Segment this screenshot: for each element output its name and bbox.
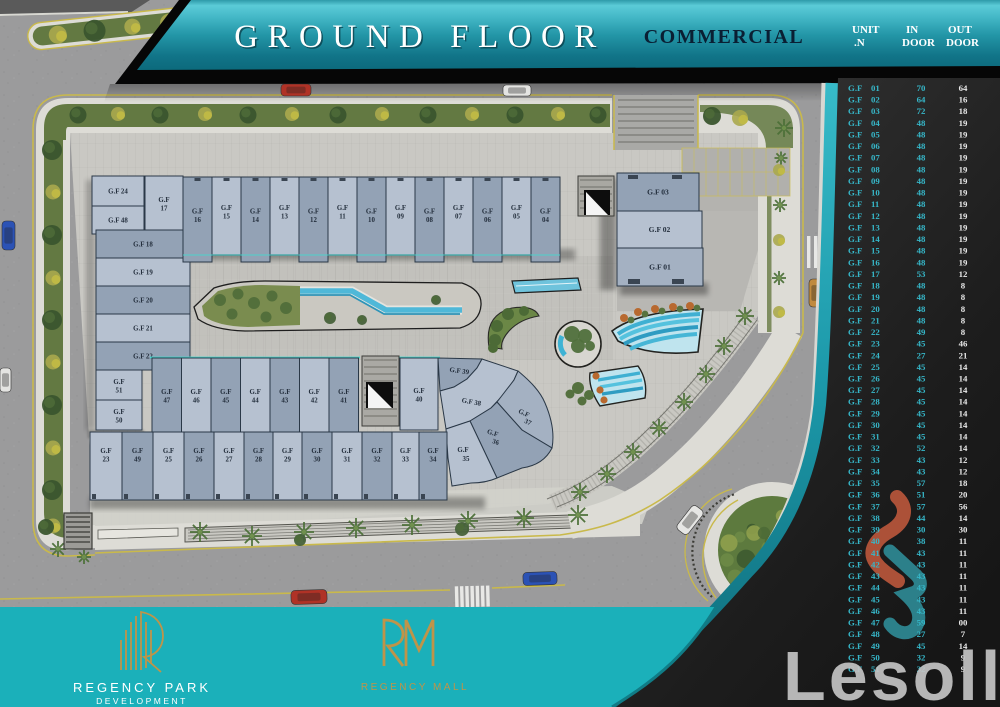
svg-text:24: 24 [871, 350, 880, 360]
svg-text:38: 38 [917, 536, 926, 546]
svg-text:41: 41 [871, 548, 880, 558]
svg-text:45: 45 [917, 339, 926, 349]
svg-text:29: 29 [284, 457, 291, 464]
svg-text:G.F: G.F [400, 448, 411, 455]
svg-text:11: 11 [871, 199, 879, 209]
svg-text:G.F: G.F [848, 339, 862, 349]
svg-text:08: 08 [871, 164, 880, 174]
svg-text:02: 02 [871, 95, 880, 105]
svg-text:G.F: G.F [848, 95, 862, 105]
svg-text:G.F: G.F [848, 222, 862, 232]
svg-text:G.F: G.F [371, 448, 382, 455]
svg-text:G.F 21: G.F 21 [133, 326, 153, 333]
svg-text:07: 07 [455, 214, 462, 221]
svg-text:G.F: G.F [848, 559, 862, 569]
svg-text:G.F: G.F [366, 209, 377, 216]
svg-text:48: 48 [917, 164, 926, 174]
svg-text:32: 32 [374, 457, 381, 464]
svg-text:G.F: G.F [113, 379, 124, 386]
svg-text:26: 26 [196, 457, 203, 464]
svg-text:G.F: G.F [848, 455, 862, 465]
svg-text:8: 8 [961, 327, 966, 337]
svg-text:06: 06 [871, 141, 880, 151]
svg-text:43: 43 [917, 571, 926, 581]
svg-text:48: 48 [917, 188, 926, 198]
svg-text:48: 48 [917, 199, 926, 209]
svg-text:12: 12 [959, 455, 968, 465]
svg-text:G.F: G.F [848, 443, 862, 453]
svg-text:37: 37 [871, 501, 880, 511]
svg-text:18: 18 [959, 106, 968, 116]
svg-text:G.F: G.F [337, 205, 348, 212]
svg-text:10: 10 [368, 217, 375, 224]
svg-text:G.F: G.F [848, 362, 862, 372]
svg-text:11: 11 [959, 548, 967, 558]
svg-text:G.F: G.F [848, 513, 862, 523]
svg-text:19: 19 [959, 211, 968, 221]
svg-text:.N: .N [854, 37, 865, 49]
svg-text:G.F: G.F [457, 447, 468, 454]
svg-text:39: 39 [871, 525, 880, 535]
svg-text:G.F: G.F [540, 209, 551, 216]
svg-text:06: 06 [484, 217, 491, 224]
svg-text:15: 15 [223, 214, 230, 221]
svg-text:70: 70 [917, 83, 926, 93]
svg-text:14: 14 [959, 432, 968, 442]
svg-text:G.F: G.F [848, 408, 862, 418]
svg-text:27: 27 [226, 457, 233, 464]
svg-text:33: 33 [871, 455, 880, 465]
svg-text:8: 8 [961, 292, 966, 302]
svg-text:53: 53 [917, 269, 926, 279]
svg-text:42: 42 [311, 398, 318, 405]
svg-text:G.F: G.F [848, 269, 862, 279]
svg-text:45: 45 [917, 397, 926, 407]
svg-text:G.F: G.F [424, 209, 435, 216]
svg-text:43: 43 [917, 548, 926, 558]
svg-text:45: 45 [222, 398, 229, 405]
svg-text:G.F: G.F [413, 388, 424, 395]
svg-text:G.F 48: G.F 48 [108, 218, 128, 225]
svg-text:12: 12 [310, 217, 317, 224]
svg-text:48: 48 [917, 222, 926, 232]
svg-text:19: 19 [959, 246, 968, 256]
svg-text:00: 00 [959, 618, 968, 628]
svg-text:11: 11 [959, 559, 967, 569]
svg-text:DEVELOPMENT: DEVELOPMENT [96, 696, 188, 706]
svg-text:19: 19 [959, 176, 968, 186]
svg-text:G.F: G.F [250, 209, 261, 216]
svg-text:19: 19 [959, 141, 968, 151]
svg-text:COMMERCIAL: COMMERCIAL [644, 26, 805, 48]
svg-text:35: 35 [463, 456, 470, 463]
svg-text:G.F: G.F [848, 490, 862, 500]
svg-text:47: 47 [871, 618, 880, 628]
svg-text:48: 48 [917, 130, 926, 140]
svg-text:42: 42 [871, 559, 880, 569]
svg-text:09: 09 [397, 214, 404, 221]
svg-text:G.F: G.F [848, 525, 862, 535]
svg-text:30: 30 [959, 525, 968, 535]
svg-text:43: 43 [917, 455, 926, 465]
svg-text:22: 22 [871, 327, 880, 337]
svg-text:G.F: G.F [848, 292, 862, 302]
svg-text:G.F: G.F [191, 389, 202, 396]
svg-text:01: 01 [871, 83, 880, 93]
svg-text:30: 30 [917, 525, 926, 535]
svg-text:Lesoll: Lesoll [783, 637, 1000, 707]
svg-text:G.F 02: G.F 02 [649, 225, 671, 234]
svg-text:48: 48 [917, 234, 926, 244]
svg-text:64: 64 [917, 95, 926, 105]
svg-text:31: 31 [344, 457, 351, 464]
svg-text:49: 49 [134, 457, 141, 464]
svg-text:05: 05 [513, 214, 520, 221]
svg-text:36: 36 [871, 490, 880, 500]
svg-text:16: 16 [194, 217, 201, 224]
svg-text:15: 15 [871, 246, 880, 256]
svg-text:G.F: G.F [848, 106, 862, 116]
svg-text:51: 51 [116, 388, 123, 395]
svg-text:G.F: G.F [163, 448, 174, 455]
svg-text:23: 23 [871, 339, 880, 349]
svg-text:31: 31 [871, 432, 880, 442]
svg-text:45: 45 [917, 408, 926, 418]
svg-text:G.F: G.F [848, 118, 862, 128]
svg-text:G.F 18: G.F 18 [133, 242, 153, 249]
svg-text:G.F: G.F [848, 315, 862, 325]
svg-text:34: 34 [871, 467, 880, 477]
svg-text:28: 28 [871, 397, 880, 407]
svg-text:G.F: G.F [221, 205, 232, 212]
svg-text:G.F: G.F [848, 548, 862, 558]
svg-text:45: 45 [917, 385, 926, 395]
svg-text:G.F 03: G.F 03 [647, 188, 669, 197]
svg-text:11: 11 [959, 594, 967, 604]
svg-text:18: 18 [959, 478, 968, 488]
svg-text:45: 45 [917, 362, 926, 372]
svg-text:G.F: G.F [848, 350, 862, 360]
svg-text:G.F: G.F [848, 594, 862, 604]
svg-text:57: 57 [917, 478, 926, 488]
svg-text:10: 10 [871, 188, 880, 198]
svg-text:G.F: G.F [220, 389, 231, 396]
svg-text:30: 30 [871, 420, 880, 430]
svg-text:G.F: G.F [848, 164, 862, 174]
svg-text:11: 11 [959, 583, 967, 593]
svg-text:48: 48 [917, 281, 926, 291]
svg-text:26: 26 [871, 374, 880, 384]
svg-text:12: 12 [959, 269, 968, 279]
svg-text:14: 14 [959, 443, 968, 453]
svg-text:G.F: G.F [192, 209, 203, 216]
svg-text:21: 21 [871, 315, 880, 325]
svg-text:IN: IN [906, 24, 918, 36]
svg-text:38: 38 [871, 513, 880, 523]
svg-text:40: 40 [416, 397, 423, 404]
svg-text:G.F: G.F [848, 234, 862, 244]
svg-text:G.F: G.F [253, 448, 264, 455]
svg-text:07: 07 [871, 153, 880, 163]
svg-text:40: 40 [871, 536, 880, 546]
svg-text:14: 14 [959, 374, 968, 384]
svg-text:43: 43 [917, 559, 926, 569]
svg-text:48: 48 [917, 118, 926, 128]
svg-text:44: 44 [871, 583, 880, 593]
svg-text:G.F: G.F [250, 389, 261, 396]
svg-text:48: 48 [917, 304, 926, 314]
svg-text:27: 27 [917, 350, 926, 360]
svg-text:G.F: G.F [848, 397, 862, 407]
svg-text:32: 32 [871, 443, 880, 453]
svg-text:14: 14 [871, 234, 880, 244]
svg-text:12: 12 [959, 467, 968, 477]
svg-text:G.F: G.F [132, 448, 143, 455]
svg-text:21: 21 [959, 350, 968, 360]
svg-text:G.F: G.F [848, 536, 862, 546]
svg-text:11: 11 [959, 536, 967, 546]
svg-text:25: 25 [165, 457, 172, 464]
svg-text:G.F: G.F [161, 389, 172, 396]
svg-text:04: 04 [542, 217, 549, 224]
svg-text:12: 12 [871, 211, 880, 221]
svg-text:13: 13 [871, 222, 880, 232]
svg-text:43: 43 [917, 594, 926, 604]
svg-text:GROUND FLOOR: GROUND FLOOR [234, 19, 606, 55]
svg-text:G.F: G.F [279, 205, 290, 212]
svg-text:46: 46 [871, 606, 880, 616]
svg-text:18: 18 [871, 281, 880, 291]
svg-text:52: 52 [917, 443, 926, 453]
svg-text:REGENCY PARK: REGENCY PARK [73, 680, 211, 695]
svg-text:13: 13 [281, 214, 288, 221]
svg-text:G.F: G.F [848, 606, 862, 616]
svg-text:G.F: G.F [338, 389, 349, 396]
svg-text:G.F: G.F [848, 618, 862, 628]
svg-text:G.F: G.F [848, 304, 862, 314]
svg-text:20: 20 [959, 490, 968, 500]
svg-text:G.F: G.F [511, 205, 522, 212]
svg-text:16: 16 [871, 257, 880, 267]
svg-text:19: 19 [959, 118, 968, 128]
svg-text:05: 05 [871, 130, 880, 140]
svg-text:41: 41 [340, 398, 347, 405]
svg-text:G.F 19: G.F 19 [133, 270, 153, 277]
svg-text:11: 11 [959, 571, 967, 581]
svg-text:45: 45 [917, 374, 926, 384]
svg-text:G.F: G.F [848, 246, 862, 256]
svg-text:57: 57 [917, 501, 926, 511]
svg-text:19: 19 [959, 222, 968, 232]
svg-text:43: 43 [281, 398, 288, 405]
svg-text:51: 51 [917, 490, 926, 500]
svg-text:09: 09 [871, 176, 880, 186]
svg-text:30: 30 [314, 457, 321, 464]
svg-text:19: 19 [871, 292, 880, 302]
svg-text:44: 44 [917, 513, 926, 523]
svg-text:19: 19 [959, 164, 968, 174]
svg-text:48: 48 [917, 141, 926, 151]
svg-text:08: 08 [426, 217, 433, 224]
svg-text:48: 48 [917, 211, 926, 221]
svg-text:20: 20 [871, 304, 880, 314]
svg-text:G.F: G.F [282, 448, 293, 455]
svg-text:23: 23 [103, 457, 110, 464]
svg-text:G.F: G.F [848, 176, 862, 186]
svg-text:11: 11 [959, 606, 967, 616]
svg-text:DOOR: DOOR [946, 37, 980, 49]
svg-text:14: 14 [959, 397, 968, 407]
svg-text:45: 45 [871, 594, 880, 604]
svg-text:43: 43 [871, 571, 880, 581]
svg-text:G.F: G.F [848, 257, 862, 267]
svg-text:DOOR: DOOR [902, 37, 936, 49]
svg-text:14: 14 [959, 385, 968, 395]
svg-text:G.F: G.F [848, 385, 862, 395]
svg-text:34: 34 [430, 457, 437, 464]
svg-text:G.F: G.F [193, 448, 204, 455]
svg-text:43: 43 [917, 606, 926, 616]
svg-text:G.F: G.F [848, 188, 862, 198]
svg-text:G.F: G.F [848, 467, 862, 477]
svg-text:G.F: G.F [308, 209, 319, 216]
svg-text:8: 8 [961, 304, 966, 314]
svg-text:OUT: OUT [948, 24, 973, 36]
svg-text:25: 25 [871, 362, 880, 372]
svg-text:47: 47 [163, 398, 170, 405]
svg-text:59: 59 [917, 618, 926, 628]
svg-text:64: 64 [959, 83, 968, 93]
svg-text:G.F: G.F [848, 501, 862, 511]
svg-text:8: 8 [961, 315, 966, 325]
svg-text:28: 28 [255, 457, 262, 464]
svg-text:48: 48 [917, 315, 926, 325]
svg-text:19: 19 [959, 257, 968, 267]
svg-text:G.F: G.F [223, 448, 234, 455]
svg-text:G.F: G.F [427, 448, 438, 455]
svg-text:G.F: G.F [848, 432, 862, 442]
svg-text:G.F: G.F [848, 327, 862, 337]
svg-text:UNIT: UNIT [852, 24, 880, 36]
svg-text:G.F: G.F [848, 374, 862, 384]
svg-text:G.F 20: G.F 20 [133, 298, 153, 305]
svg-text:44: 44 [252, 398, 259, 405]
svg-text:G.F: G.F [279, 389, 290, 396]
svg-text:14: 14 [959, 513, 968, 523]
svg-text:G.F: G.F [453, 205, 464, 212]
svg-text:17: 17 [871, 269, 880, 279]
svg-text:19: 19 [959, 188, 968, 198]
svg-text:G.F: G.F [395, 205, 406, 212]
svg-text:45: 45 [917, 432, 926, 442]
svg-text:19: 19 [959, 199, 968, 209]
svg-text:17: 17 [161, 206, 168, 213]
svg-text:56: 56 [959, 501, 968, 511]
svg-text:49: 49 [917, 327, 926, 337]
svg-text:48: 48 [917, 257, 926, 267]
svg-text:35: 35 [871, 478, 880, 488]
svg-text:14: 14 [959, 408, 968, 418]
svg-text:27: 27 [871, 385, 880, 395]
svg-text:G.F: G.F [848, 281, 862, 291]
svg-text:G.F: G.F [848, 153, 862, 163]
svg-text:48: 48 [917, 176, 926, 186]
svg-text:G.F: G.F [848, 420, 862, 430]
svg-text:43: 43 [917, 583, 926, 593]
svg-text:G.F 01: G.F 01 [649, 263, 671, 272]
svg-text:G.F 24: G.F 24 [108, 189, 128, 196]
svg-text:G.F: G.F [158, 197, 169, 204]
svg-text:50: 50 [116, 418, 123, 425]
svg-text:16: 16 [959, 95, 968, 105]
svg-text:G.F: G.F [482, 209, 493, 216]
svg-text:72: 72 [917, 106, 926, 116]
svg-text:11: 11 [339, 214, 346, 221]
svg-text:G.F: G.F [848, 141, 862, 151]
svg-text:03: 03 [871, 106, 880, 116]
svg-text:48: 48 [917, 292, 926, 302]
svg-text:8: 8 [961, 281, 966, 291]
svg-text:19: 19 [959, 153, 968, 163]
svg-text:43: 43 [917, 467, 926, 477]
svg-text:G.F: G.F [100, 448, 111, 455]
svg-text:G.F: G.F [848, 199, 862, 209]
svg-text:33: 33 [402, 457, 409, 464]
svg-text:G.F: G.F [848, 130, 862, 140]
svg-text:14: 14 [252, 217, 259, 224]
svg-text:14: 14 [959, 420, 968, 430]
svg-text:19: 19 [959, 130, 968, 140]
svg-text:REGENCY MALL: REGENCY MALL [361, 682, 469, 693]
svg-text:G.F: G.F [848, 83, 862, 93]
svg-text:G.F: G.F [113, 409, 124, 416]
svg-text:45: 45 [917, 420, 926, 430]
svg-text:G.F: G.F [848, 583, 862, 593]
svg-text:G.F: G.F [848, 571, 862, 581]
svg-text:46: 46 [959, 339, 968, 349]
svg-text:46: 46 [193, 398, 200, 405]
svg-text:19: 19 [959, 234, 968, 244]
svg-text:48: 48 [917, 153, 926, 163]
svg-text:G.F: G.F [309, 389, 320, 396]
svg-text:29: 29 [871, 408, 880, 418]
svg-text:G.F: G.F [848, 211, 862, 221]
svg-text:48: 48 [917, 246, 926, 256]
svg-text:G.F: G.F [341, 448, 352, 455]
svg-text:14: 14 [959, 362, 968, 372]
svg-text:04: 04 [871, 118, 880, 128]
svg-text:G.F: G.F [848, 478, 862, 488]
svg-text:G.F: G.F [311, 448, 322, 455]
